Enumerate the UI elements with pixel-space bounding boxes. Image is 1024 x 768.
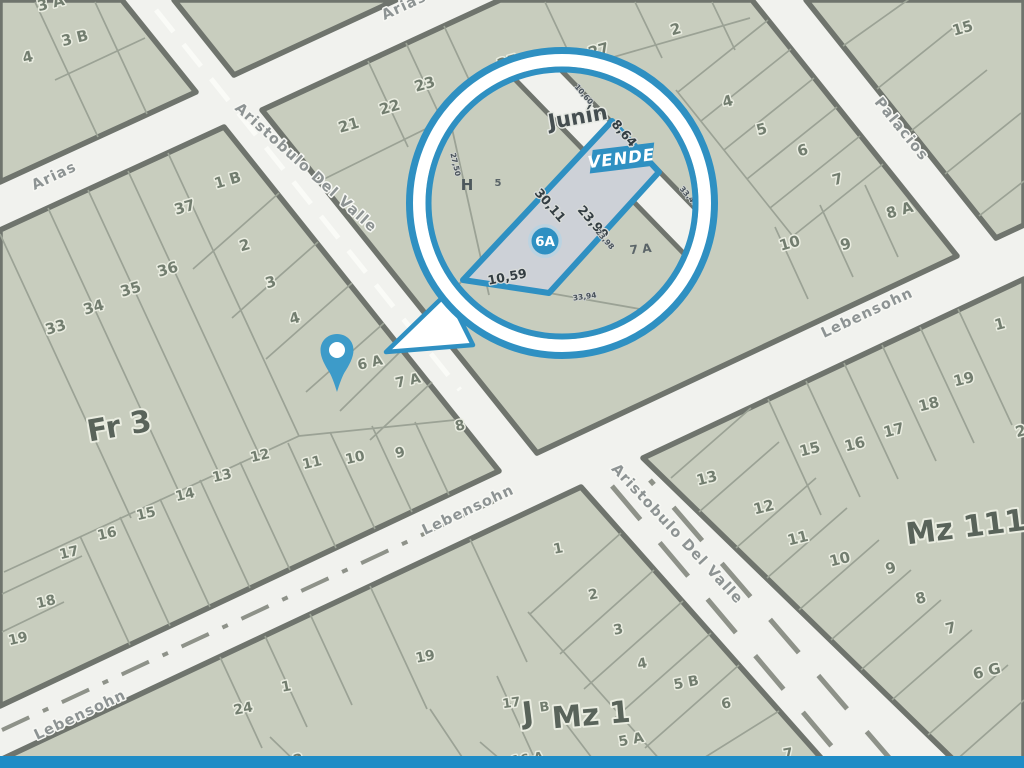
neighbor-label-7a: 7 A bbox=[629, 241, 653, 257]
lot-label: B bbox=[539, 699, 551, 715]
neighbor-label-h: H bbox=[461, 176, 474, 194]
area-label-mz1: Mz 1 bbox=[550, 695, 631, 737]
map-canvas: 3 A 3 B 4 21 22 23 25 27 2 4 5 6 7 8 A 9… bbox=[0, 0, 1024, 768]
neighbor-label-5: 5 bbox=[495, 178, 502, 189]
lot-6a-badge: 6A bbox=[528, 224, 562, 258]
lot-label: 17 bbox=[502, 695, 522, 712]
bottom-accent-bar bbox=[0, 756, 1024, 768]
lot-6a-badge-label: 6A bbox=[535, 234, 555, 250]
